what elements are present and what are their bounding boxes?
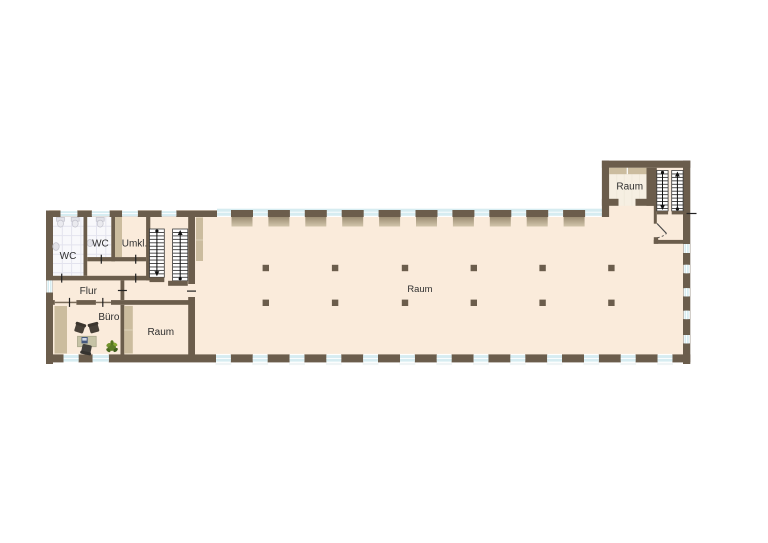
svg-text:Büro: Büro bbox=[98, 312, 120, 323]
svg-text:WC: WC bbox=[92, 238, 109, 249]
svg-text:Raum: Raum bbox=[616, 181, 643, 192]
svg-text:WC: WC bbox=[60, 251, 77, 262]
svg-text:Flur: Flur bbox=[80, 286, 98, 297]
svg-text:Raum: Raum bbox=[147, 327, 174, 338]
svg-text:Raum: Raum bbox=[407, 283, 432, 294]
svg-text:Umkl.: Umkl. bbox=[122, 239, 148, 250]
